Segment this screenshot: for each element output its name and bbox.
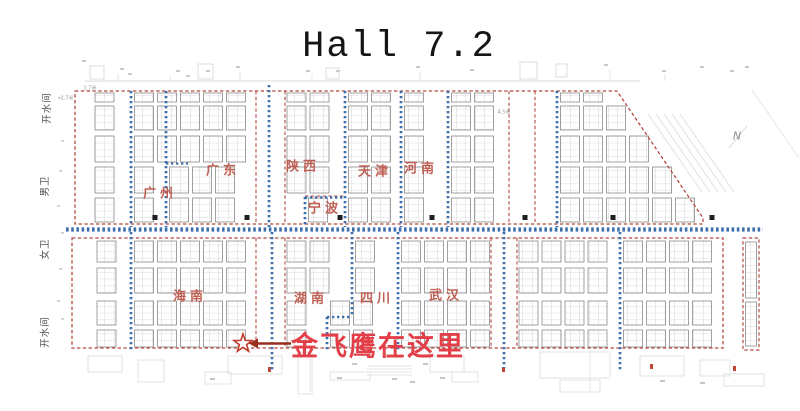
compass-north-label: N	[733, 130, 741, 143]
hall-title: Hall 7.2	[302, 26, 496, 68]
dimension-label: 4.5米	[498, 109, 511, 116]
zone-label-tianjin: 天津	[358, 161, 392, 180]
zone-label-hainan: 海南	[173, 286, 207, 305]
facility-label-hot-water-top: 开水间	[39, 92, 53, 124]
zone-label-guangzhou: 广州	[143, 183, 177, 202]
location-annotation: 金飞鹰在这里	[291, 325, 465, 364]
zone-label-wuhan: 武汉	[429, 285, 463, 304]
facility-label-hot-water-bottom: 开水间	[37, 316, 51, 348]
dimension-label: 1.7米	[84, 85, 97, 92]
zone-label-hunan: 湖南	[294, 288, 328, 307]
zone-label-guangdong: 广东	[206, 160, 240, 179]
zone-label-sichuan: 四川	[360, 288, 394, 307]
facility-label-mens-toilet: 男卫	[37, 175, 51, 196]
exhibition-floorplan: Hall 7.2 广州 广东 陕西 天津 河南 宁波 海南 湖南 四川 武汉 开…	[0, 0, 800, 411]
zone-label-henan: 河南	[404, 158, 438, 177]
dimension-label: 1.7米	[61, 95, 74, 102]
zone-label-shaanxi: 陕西	[286, 156, 320, 175]
zone-label-ningbo: 宁波	[308, 198, 342, 217]
facility-label-womens-toilet: 女卫	[37, 238, 51, 259]
